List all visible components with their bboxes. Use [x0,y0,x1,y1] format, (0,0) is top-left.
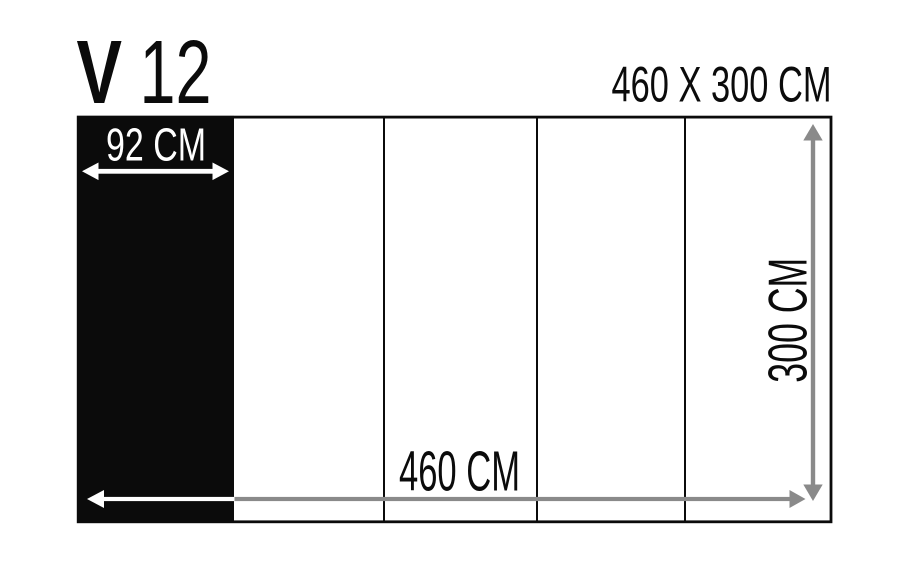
svg-text:300 CM: 300 CM [757,258,819,383]
svg-text:460 X 300 CM: 460 X 300 CM [612,57,832,113]
svg-text:12: 12 [140,23,212,123]
svg-text:V: V [77,23,123,123]
svg-text:92 CM: 92 CM [106,119,206,171]
svg-text:460 CM: 460 CM [399,440,520,504]
